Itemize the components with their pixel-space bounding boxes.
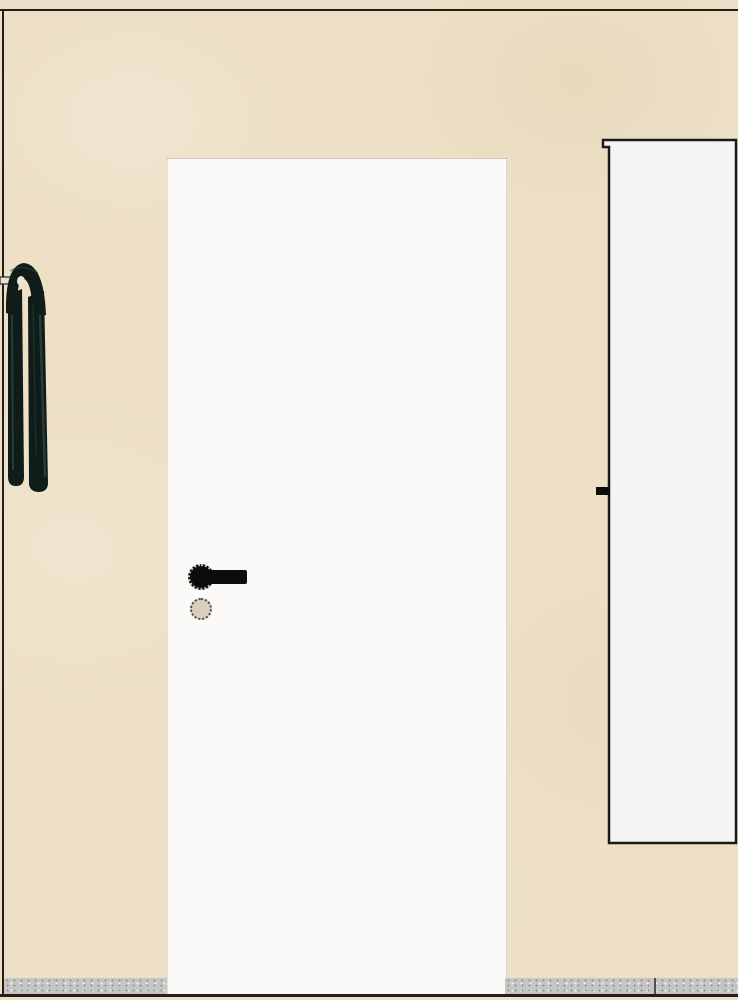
baseboard-right bbox=[505, 978, 738, 995]
baseboard-left bbox=[4, 978, 167, 995]
towel-left-leg[interactable] bbox=[8, 289, 24, 486]
open-door-edge-handle[interactable] bbox=[596, 487, 610, 495]
open-door-panel-face[interactable] bbox=[603, 140, 736, 843]
open-door-panel[interactable] bbox=[595, 130, 738, 855]
keyhole-escutcheon[interactable] bbox=[190, 598, 212, 620]
wall-corner-line bbox=[2, 9, 4, 997]
door-handle-lever-icon[interactable] bbox=[200, 570, 247, 584]
ceiling-edge-line bbox=[0, 9, 738, 11]
baseboard-seam bbox=[654, 978, 656, 995]
room-scene bbox=[0, 0, 738, 1000]
floor-line bbox=[0, 994, 738, 997]
hanging-towel-group[interactable] bbox=[0, 255, 60, 500]
towel-streak bbox=[12, 315, 13, 470]
towel-hook-highlight bbox=[17, 276, 25, 286]
